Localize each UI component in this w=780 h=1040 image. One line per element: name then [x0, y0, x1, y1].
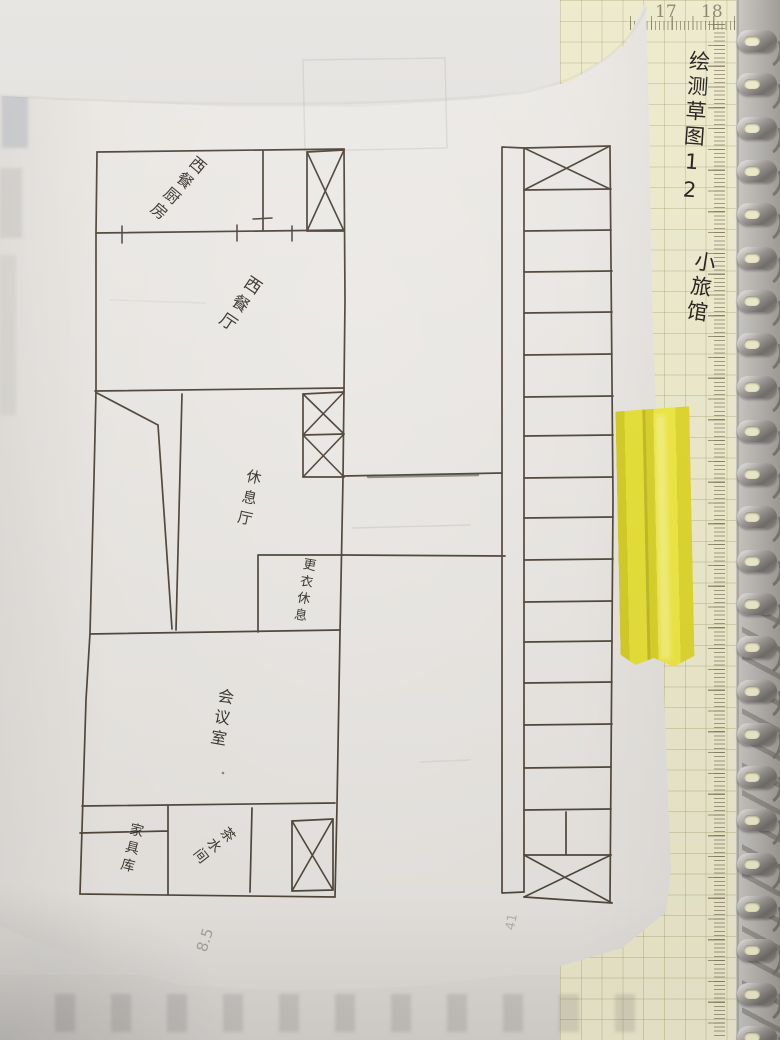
spiral-coil [737, 463, 777, 485]
spiral-coil [737, 593, 777, 615]
tape-crease [642, 407, 650, 667]
ghost-print [0, 255, 16, 415]
spiral-coil [737, 766, 777, 788]
yellow-tape [615, 406, 694, 667]
ruler-side-major-ticks [708, 24, 725, 1036]
tape-shine [655, 415, 670, 660]
spiral-coil [737, 853, 777, 875]
spiral-coil [737, 73, 777, 95]
spiral-coil [737, 420, 777, 442]
spiral-coil [737, 117, 777, 139]
ruler-top-number-18: 18 [701, 2, 723, 22]
spiral-coil [737, 30, 777, 52]
ruler-top-major-ticks [630, 16, 742, 30]
spiral-coil [737, 896, 777, 918]
spiral-coil [737, 983, 777, 1005]
spiral-coil [737, 680, 777, 702]
spiral-coil [737, 247, 777, 269]
spiral-coil [737, 1026, 777, 1040]
spiral-coil [737, 723, 777, 745]
spiral-coil [737, 809, 777, 831]
spiral-coil [737, 506, 777, 528]
spiral-coil [737, 290, 777, 312]
spiral-coil [737, 203, 777, 225]
spiral-coil [737, 636, 777, 658]
spiral-coil [737, 160, 777, 182]
ghost-print [2, 60, 28, 148]
spiral-coil [737, 550, 777, 572]
ruler-top-number-17: 17 [655, 2, 677, 22]
ghost-print [0, 168, 22, 238]
spiral-coil [737, 939, 777, 961]
photo-canvas: 17 18 0123456789101112131415161718192021… [0, 0, 780, 1040]
pencil-note-right: 41 [503, 913, 521, 932]
spiral-coil [737, 376, 777, 398]
corner-shadow [0, 880, 240, 1040]
spiral-coil [737, 333, 777, 355]
ghost-print [55, 46, 121, 98]
ghost-print [120, 56, 210, 96]
